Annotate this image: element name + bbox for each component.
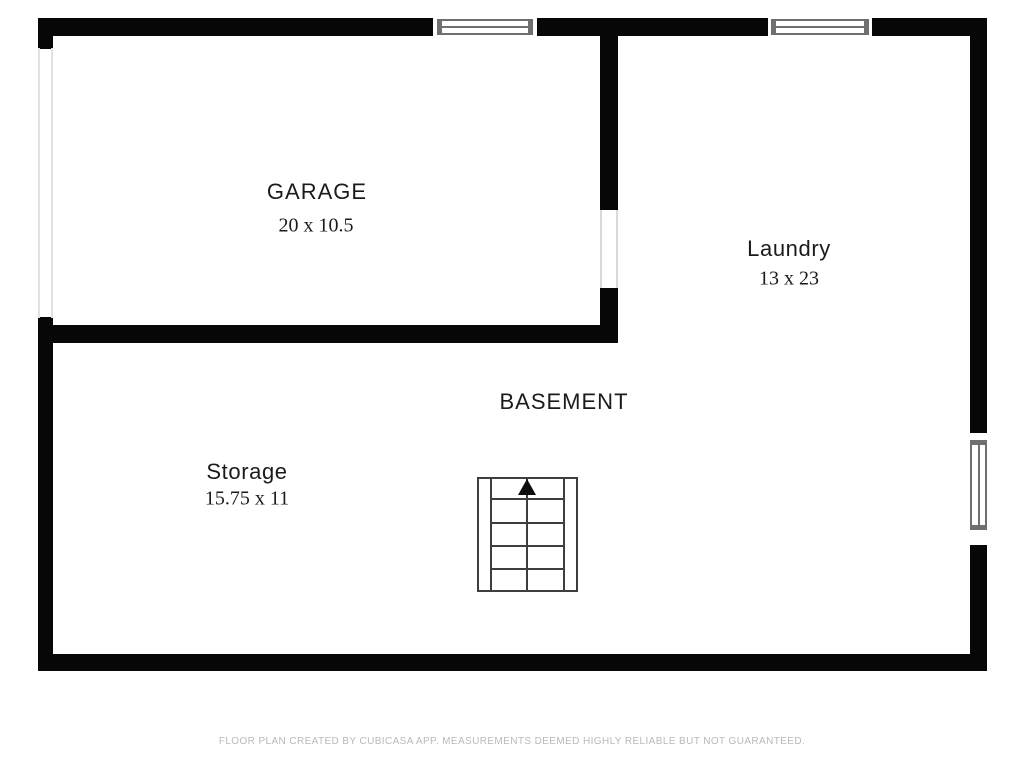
doorway-jamb-right-line — [616, 210, 618, 288]
stair-tread — [492, 522, 563, 524]
top-right-window — [771, 19, 869, 35]
stair-tread — [492, 545, 563, 547]
stair-tread — [492, 568, 563, 570]
window-pane-line — [978, 445, 980, 525]
left-wall-main — [38, 317, 53, 671]
right-wall-lower — [970, 545, 987, 671]
right-side-window — [970, 440, 987, 530]
floor-plan-canvas: GARAGE 20 x 10.5 Laundry 13 x 23 BASEMEN… — [0, 0, 1024, 768]
room-dimensions-garage: 20 x 10.5 — [279, 215, 354, 238]
garage-door-outer-line — [38, 48, 40, 318]
garage-door-inner-line — [51, 48, 53, 318]
room-label-laundry: Laundry — [747, 236, 831, 262]
stair-center-line — [526, 479, 528, 590]
bottom-wall — [38, 654, 987, 671]
stair-rail-left — [490, 479, 492, 590]
garage-south-wall — [38, 325, 618, 343]
top-left-window — [437, 19, 533, 35]
stair-tread — [492, 498, 563, 500]
window-pane-line — [776, 26, 864, 28]
stair-rail-right — [563, 479, 565, 590]
staircase — [477, 477, 578, 592]
doorway-jamb-left-line — [600, 210, 602, 288]
garage-laundry-wall-upper — [600, 18, 618, 210]
room-label-garage: GARAGE — [267, 179, 367, 205]
room-dimensions-storage: 15.75 x 11 — [205, 488, 289, 511]
window-pane-line — [442, 26, 528, 28]
footer-attribution: FLOOR PLAN CREATED BY CUBICASA APP. MEAS… — [0, 736, 1024, 747]
right-wall-upper — [970, 18, 987, 433]
top-wall-segment-left — [38, 18, 433, 36]
floor-label-basement: BASEMENT — [499, 389, 628, 415]
top-wall-segment-middle — [537, 18, 768, 36]
stairs-up-arrow-icon — [518, 479, 536, 495]
room-dimensions-laundry: 13 x 23 — [759, 268, 819, 291]
left-wall-stub — [38, 18, 53, 49]
room-label-storage: Storage — [206, 459, 287, 485]
